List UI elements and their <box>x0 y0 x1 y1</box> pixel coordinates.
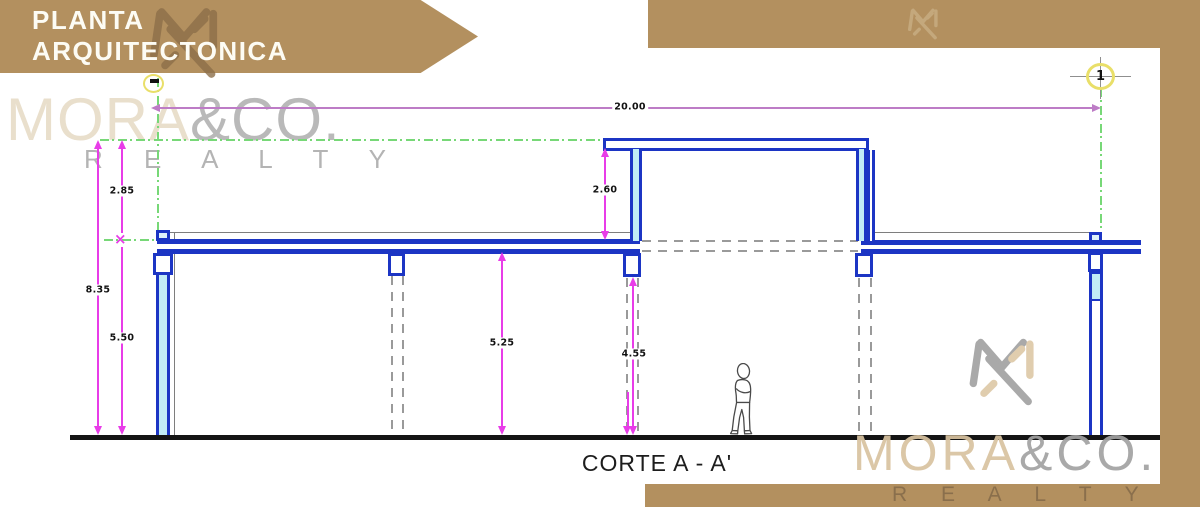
slab-top-edge-line <box>875 232 1093 233</box>
dim-label-clear-height: 5.25 <box>488 338 517 349</box>
dim-arrow <box>94 140 102 149</box>
hidden-column-line <box>870 278 872 436</box>
dim-arrow <box>94 426 102 435</box>
axis-line <box>100 139 604 141</box>
hidden-column-line <box>402 276 404 436</box>
dimension-extension-line <box>627 392 629 427</box>
clerestory-wall-right-outer <box>867 150 875 241</box>
beam-section <box>1088 252 1103 272</box>
beam-section <box>388 253 405 276</box>
hidden-column-line <box>858 278 860 436</box>
realty-tagline-top-left: R E A L T Y <box>84 144 403 175</box>
parapet-cap <box>1089 232 1102 243</box>
wall-face-line <box>174 233 175 436</box>
banner-title-line2: ARQUITECTONICA <box>32 36 288 67</box>
brand-suffix-text: &CO. <box>1019 425 1157 481</box>
mora-monogram-icon <box>897 5 949 43</box>
left-wall-column <box>156 275 170 436</box>
dim-arrow <box>118 426 126 435</box>
dim-arrow <box>601 148 609 157</box>
person-figure-sketch <box>722 363 764 437</box>
dim-arrow <box>623 426 631 435</box>
dim-arrow <box>1092 104 1101 112</box>
clerestory-wall-left <box>630 149 642 241</box>
dim-arrow <box>498 252 506 261</box>
dim-arrow <box>118 140 126 149</box>
banner-title: PLANTA ARQUITECTONICA <box>32 5 288 67</box>
clerestory-wall-right <box>856 149 867 241</box>
right-brand-strip <box>1160 0 1200 507</box>
left-roof-slab <box>157 239 640 254</box>
beam-section <box>623 253 641 277</box>
flyer-canvas: MORA&CO. R E A L T Y × <box>0 0 1200 507</box>
clerestory-roof-slab <box>603 138 869 151</box>
dim-label-clerestory: 2.60 <box>591 185 620 196</box>
dim-label-lower: 5.50 <box>108 333 137 344</box>
beam-section <box>153 253 173 275</box>
beam-section <box>855 253 873 277</box>
right-wall-column <box>1089 301 1103 436</box>
banner-title-line1: PLANTA <box>32 5 288 36</box>
dim-label-overall-height: 8.35 <box>84 285 113 296</box>
right-wall-window <box>1089 272 1103 301</box>
realty-tagline-bottom-right: R E A L T Y <box>892 483 1153 507</box>
mora-monogram-icon <box>941 331 1063 413</box>
dim-arrow <box>629 277 637 286</box>
dim-arrow <box>498 426 506 435</box>
hidden-slab-line <box>642 240 858 242</box>
hidden-slab-line <box>642 250 858 252</box>
grid-bubble-right: 1 <box>1086 63 1115 90</box>
dim-arrow <box>151 104 160 112</box>
dim-label-total-width: 20.00 <box>612 102 648 113</box>
section-title: CORTE A - A' <box>576 450 738 477</box>
parapet-cap <box>156 230 170 241</box>
hidden-column-line <box>391 276 393 436</box>
dim-arrow <box>601 231 609 240</box>
dim-label-beam-clear: 4.55 <box>620 349 649 360</box>
mora-logo-top-left: MORA&CO. <box>6 90 341 150</box>
mora-logo-bottom-right: MORA&CO. <box>853 428 1157 478</box>
axis-line <box>157 78 159 242</box>
slab-top-edge-line <box>168 232 638 233</box>
dim-cross-marker: × <box>114 230 127 248</box>
brand-text: MORA <box>853 425 1019 481</box>
dim-label-upper: 2.85 <box>108 186 137 197</box>
brand-suffix-text: &CO. <box>190 86 341 153</box>
